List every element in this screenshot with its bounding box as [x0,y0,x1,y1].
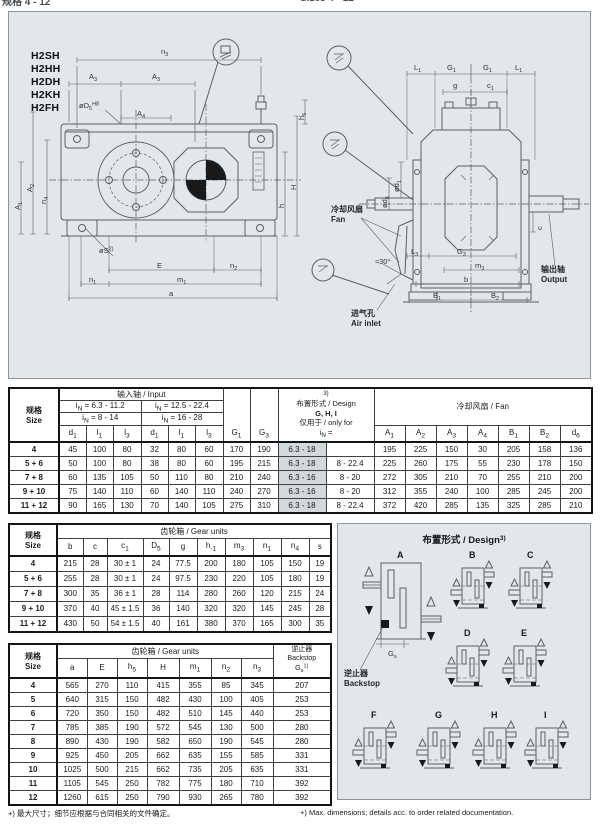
input-group-header: 输入轴 / Input [59,388,223,401]
air-inlet-label-zh: 进气孔 [351,308,375,319]
cell: 370 [225,617,253,633]
col-header-b: b [57,538,83,556]
dim-label-G1: G1 [483,64,492,74]
cell: 205 [117,749,147,763]
cell: 85 [211,678,241,693]
table-row: 7785385190572545130500280 [9,721,331,735]
cell: 355 [405,485,436,499]
cell: 545 [87,777,117,791]
cell: 24 [143,572,169,587]
cell: 28 [83,572,107,587]
cell: 60 [59,471,86,485]
cell: 331 [273,749,331,763]
cell: 60 [195,442,223,457]
col-header-l1: l1 [86,425,113,442]
cell: 145 [253,602,281,617]
dim-label-m1: m1 [177,276,186,286]
cell: 780 [241,791,273,806]
cell: 1105 [57,777,87,791]
cell: 190 [117,735,147,749]
col-header-A2: A2 [405,425,436,442]
design-variant-A-diagram [360,563,441,670]
cell: 80 [113,442,141,457]
cell: 90 [59,499,86,514]
size-label: 7 + 8 [9,471,59,485]
cell: 180 [211,777,241,791]
cell: 70 [141,499,168,514]
cell: 45 ± 1.5 [107,602,143,617]
input-shaft-fan-table: 规格 Size 输入轴 / Input G1 G3 3) 布置形式 / Desi… [8,387,593,514]
cell: 890 [57,735,87,749]
dim-label-c: c [536,226,544,230]
cell: 110 [113,485,141,499]
dim-label-d6: ød6 [381,196,391,208]
cell: 450 [87,749,117,763]
dim-label-a3: A3 [152,73,160,83]
cell: 1025 [57,763,87,777]
cell: 150 [117,693,147,707]
cell: 240 [250,471,278,485]
size-label: 9 + 10 [9,602,57,617]
cell: 930 [179,791,211,806]
dim-label-n2: n2 [230,262,237,272]
cell: 482 [147,693,179,707]
cell: 80 [168,457,195,471]
cell: 545 [241,735,273,749]
design-variant-diagrams [338,524,590,799]
cell: 300 [281,617,309,633]
size-label: 4 [9,442,59,457]
dim-label-h: h [278,204,286,208]
cell: 640 [57,693,87,707]
cell: 372 [374,499,405,514]
cell: 310 [250,499,278,514]
cell: 100 [86,442,113,457]
size-label: 9 [9,749,57,763]
cell: 270 [250,485,278,499]
variant-label-H: H [491,710,498,720]
cell: 735 [179,763,211,777]
col-header-c1: c1 [107,538,143,556]
cell: 150 [560,457,592,471]
cell: 312 [374,485,405,499]
cell: 80 [168,442,195,457]
cell: 200 [197,556,225,572]
cell: 28 [83,556,107,572]
col-header-A1: A1 [374,425,405,442]
cell: 385 [87,721,117,735]
col-header-a: a [57,658,87,678]
table-row: 9925450205662635155585331 [9,749,331,763]
cell: 30 ± 1 [107,572,143,587]
table-row: 101025500215662735205635331 [9,763,331,777]
size-label: 7 + 8 [9,587,57,602]
cell: 925 [57,749,87,763]
cell: 240 [223,485,250,499]
cell: 430 [179,693,211,707]
design-variant-E-diagram [503,639,546,686]
model-name: H2DH [31,76,60,89]
cell: 195 [374,442,405,457]
cell: 155 [211,749,241,763]
cell: 140 [168,485,195,499]
col-header-B1: B1 [498,425,529,442]
cell: 190 [250,442,278,457]
size-label: 5 + 6 [9,572,57,587]
cell: 420 [405,499,436,514]
model-name: H2FH [31,102,60,115]
cell: 785 [57,721,87,735]
cell: 275 [223,499,250,514]
cell: 285 [436,499,467,514]
cell: 215 [281,587,309,602]
dim-label-g: g [453,82,457,90]
cell: 210 [560,499,592,514]
cell: 35 [83,587,107,602]
size-label: 10 [9,763,57,777]
size-label: 11 + 12 [9,617,57,633]
cell: 100 [467,485,498,499]
cell: 105 [253,556,281,572]
cell: 320 [225,602,253,617]
cell: 8 - 22.4 [326,499,374,514]
cell: 32 [141,442,168,457]
cell: 54 ± 1.5 [107,617,143,633]
cell: 150 [281,556,309,572]
cell: 150 [436,442,467,457]
cell: 30 ± 1 [107,556,143,572]
cell: 158 [529,442,560,457]
cell: 582 [147,735,179,749]
size-label: 8 [9,735,57,749]
col-header-n1: n1 [253,538,281,556]
cell: 405 [241,693,273,707]
cell: 110 [117,678,147,693]
cell: 110 [168,471,195,485]
cell: 572 [147,721,179,735]
dim-label-s: øS2) [99,247,113,255]
cell: 775 [179,777,211,791]
cell: 6.3 - 16 [278,485,326,499]
cell: 165 [253,617,281,633]
col-header-A3: A3 [436,425,467,442]
cell: 6.3 - 18 [278,442,326,457]
cell: 440 [241,707,273,721]
cell: 325 [498,499,529,514]
catalog-page: { "page": { "clipped_header_left": "规格 4… [0,0,600,824]
air-inlet-label-en: Air inlet [351,319,381,328]
variant-label-B: B [469,550,476,560]
table-body: 445100803280601701906.3 - 18195225150302… [9,442,592,513]
size-label: 5 + 6 [9,457,59,471]
cell: 178 [529,457,560,471]
cell: 80 [113,457,141,471]
cell: 180 [225,556,253,572]
cell: 331 [273,763,331,777]
cell: 240 [436,485,467,499]
cell: 50 [83,617,107,633]
dim-label-d1: ød1 [393,180,403,192]
cell: 260 [225,587,253,602]
cell: 36 ± 1 [107,587,143,602]
cell: 370 [57,602,83,617]
cell: 215 [57,556,83,572]
size-label: 6 [9,707,57,721]
side-view-drawing [18,39,308,301]
cell: 135 [86,471,113,485]
footnote-zh: +) 最大尺寸；细节应根据与合同相关的文件确定。 [8,808,174,819]
cell: 190 [211,735,241,749]
backstop-label-zh: 逆止器 [344,668,368,679]
cell: 790 [147,791,179,806]
cell: 60 [195,457,223,471]
cell: 36 [143,602,169,617]
cell: 265 [211,791,241,806]
cell: 19 [309,556,331,572]
cell: 150 [117,707,147,721]
cell: 136 [560,442,592,457]
dim-label-a: a [169,290,173,298]
variant-label-I: I [544,710,547,720]
table-row: 5 + 62552830 ± 12497.523022010518019 [9,572,331,587]
dim-label-h5: h5 [298,113,308,120]
cell: 253 [273,707,331,721]
dim-label-B2: B2 [491,292,499,302]
cell: 55 [467,457,498,471]
cell: 250 [117,777,147,791]
table-body: 4565270110415355853452075640315150482430… [9,678,331,805]
cell: 105 [253,572,281,587]
size-label: 4 [9,556,57,572]
cell: 635 [179,749,211,763]
cell: 615 [87,791,117,806]
ratio-range-header: iN = 12.5 - 22.4 [141,401,223,413]
cell: 6.3 - 18 [278,499,326,514]
design-variant-F-diagram [353,721,396,768]
dim-label-a1: A1 [14,202,24,210]
cell: 253 [273,693,331,707]
design-column-header: 3) 布置形式 / Design G, H, I 仅用于 / only for … [278,388,374,442]
cell: 75 [59,485,86,499]
gear-unit-drawings [9,12,590,378]
cell: 300 [57,587,83,602]
dim-label-n1: n1 [89,276,96,286]
table-row: 11 + 1290165130701401052753106.3 - 188 -… [9,499,592,514]
cell: 545 [179,721,211,735]
cell: 50 [141,471,168,485]
dim-label-L1: L1 [515,64,522,74]
cell: 161 [169,617,197,633]
variant-label-A: A [397,550,404,560]
clipped-header-right: Sizes 4 - 12 [300,0,354,4]
cell: 210 [436,471,467,485]
gear-unit-table-1: 规格 Size 齿轮箱 / Gear units b c c1 D5 g h-1… [8,523,332,633]
fan-group-header: 冷却风扇 / Fan [374,388,592,425]
col-header-D5: D5 [143,538,169,556]
table-row: 445100803280601701906.3 - 18195225150302… [9,442,592,457]
clipped-header-left: 规格 4 - 12 [2,0,50,8]
cell: 430 [57,617,83,633]
size-label: 11 + 12 [9,499,59,514]
cell: 1260 [57,791,87,806]
cell: 45 [59,442,86,457]
cell: 392 [273,791,331,806]
cell: 60 [141,485,168,499]
table-row: 7 + 83003536 ± 12811428026012021524 [9,587,331,602]
cell: 100 [86,457,113,471]
dim-label-d5: øD5H8 [79,102,99,112]
cell: 210 [529,471,560,485]
cell: 40 [143,617,169,633]
cell: 70 [467,471,498,485]
col-header-g: g [169,538,197,556]
col-header-G1: G1 [223,388,250,442]
cell: 500 [87,763,117,777]
cell: 710 [241,777,273,791]
dim-label-m3: m3 [475,262,484,272]
cell: 210 [223,471,250,485]
dim-label-G1: G1 [447,64,456,74]
col-header-l1: l1 [168,425,195,442]
cell: 28 [143,587,169,602]
dim-label-L3: L3 [411,248,418,258]
cell: 272 [374,471,405,485]
cell: 270 [87,678,117,693]
cell: 510 [179,707,211,721]
cell: 350 [87,707,117,721]
variant-label-E: E [521,628,527,638]
dim-label-G3: G3 [457,248,466,258]
cell: 200 [560,485,592,499]
cell: 205 [211,763,241,777]
cell: 585 [241,749,273,763]
table-row: 9 + 103704045 ± 1.53614032032014524528 [9,602,331,617]
cell: 24 [143,556,169,572]
cell: 114 [169,587,197,602]
cell: 24 [309,587,331,602]
col-header-n4: n4 [281,538,309,556]
backstop-label-en: Backstop [344,679,380,688]
table-row: 42152830 ± 12477.520018010515019 [9,556,331,572]
cell: 305 [405,471,436,485]
dim-label-B1: B1 [433,292,441,302]
cell: 650 [179,735,211,749]
fan-label-en: Fan [331,215,345,224]
cell: 19 [309,572,331,587]
dim-label-c1: c1 [487,82,494,92]
table-row: 8890430190582650190545280 [9,735,331,749]
cell: 180 [281,572,309,587]
model-name: H2HH [31,63,60,76]
cell: 782 [147,777,179,791]
cell: 392 [273,777,331,791]
cell: 200 [560,471,592,485]
table-row: 111105545250782775180710392 [9,777,331,791]
design-variants-panel: 布置形式 / Design3) [337,523,591,800]
cell: 130 [211,721,241,735]
cell: 28 [309,602,331,617]
cell: 345 [241,678,273,693]
design-variant-D-diagram [446,639,489,686]
cell: 205 [498,442,529,457]
cell: 140 [86,485,113,499]
cell: 35 [309,617,331,633]
col-header-h1: h-1 [197,538,225,556]
size-column-header: 规格 Size [9,644,57,678]
cell: 105 [195,499,223,514]
cell: 285 [498,485,529,499]
col-header-d1: d1 [59,425,86,442]
model-list: H2SH H2HH H2DH H2KH H2FH [31,50,60,115]
cell: 145 [211,707,241,721]
size-label: 9 + 10 [9,485,59,499]
cell: 175 [436,457,467,471]
dim-label-H: H [290,185,298,190]
col-header-l3: l3 [195,425,223,442]
table-row: 5640315150482430100405253 [9,693,331,707]
size-label: 7 [9,721,57,735]
dim-label-L1: L1 [414,64,421,74]
cell: 285 [529,499,560,514]
dim-label-angle: ≈30° [375,258,390,266]
output-shaft-label-zh: 输出轴 [541,264,565,275]
backstop-icon [381,620,389,628]
cell: 500 [241,721,273,735]
col-header-c: c [83,538,107,556]
col-header-H: H [147,658,179,678]
size-label: 5 [9,693,57,707]
col-header-l3: l3 [113,425,141,442]
fan-label-zh: 冷却风扇 [331,204,363,215]
cell: 250 [117,791,147,806]
cell: 40 [83,602,107,617]
detail-balloon-icon [327,46,413,134]
cell: 315 [87,693,117,707]
col-header-s: s [309,538,331,556]
ratio-range-header: iN = 6.3 - 11.2 [59,401,141,413]
model-name: H2SH [31,50,60,63]
cell: 260 [405,457,436,471]
cell: 38 [141,457,168,471]
cell: 215 [250,457,278,471]
dim-label-n4: n4 [40,197,50,204]
ratio-range-header: iN = 16 - 28 [141,413,223,425]
cell: 482 [147,707,179,721]
cell: 230 [197,572,225,587]
cell: 207 [273,678,331,693]
size-label: 4 [9,678,57,693]
cell: 97.5 [169,572,197,587]
gear-units-group-header: 齿轮箱 / Gear units [57,524,331,538]
table-row: 121260615250790930265780392 [9,791,331,806]
cell: 225 [405,442,436,457]
size-column-header: 规格 Size [9,388,59,442]
cell: 195 [223,457,250,471]
cell: 30 [467,442,498,457]
cell: 220 [225,572,253,587]
ratio-range-header: iN = 8 - 14 [59,413,141,425]
design-variant-I-diagram [525,721,568,768]
cell: 380 [197,617,225,633]
cell: 100 [211,693,241,707]
cell: 430 [87,735,117,749]
cell: 280 [197,587,225,602]
dim-label-b: b [464,276,468,284]
cell: 110 [195,485,223,499]
output-shaft-label-en: Output [541,275,567,284]
gear-units-group-header: 齿轮箱 / Gear units [57,644,273,658]
cell: 215 [117,763,147,777]
